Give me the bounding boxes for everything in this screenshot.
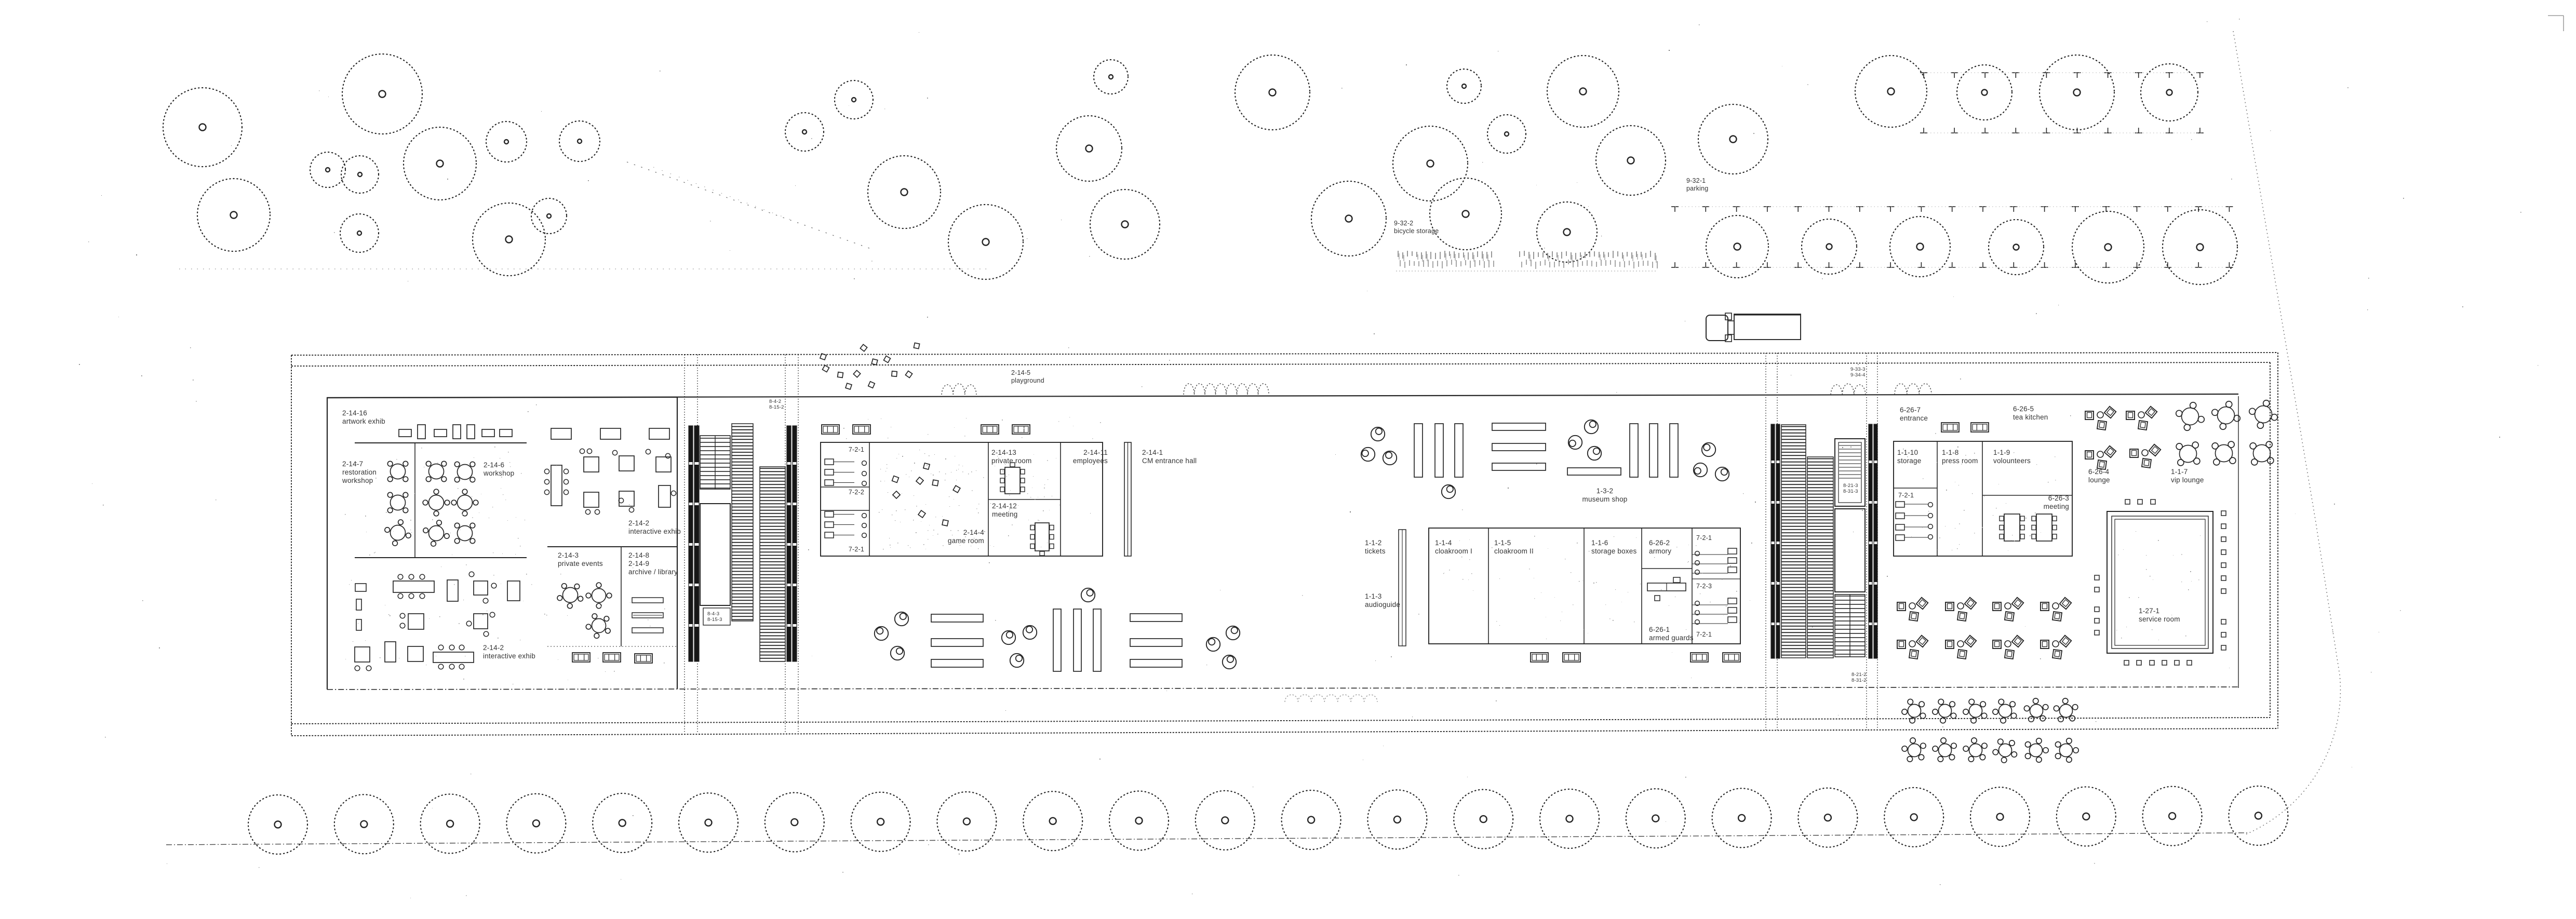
svg-text:restoration: restoration — [342, 468, 377, 476]
svg-text:museum shop: museum shop — [1582, 495, 1628, 503]
svg-text:armory: armory — [1649, 547, 1671, 555]
svg-text:CM entrance hall: CM entrance hall — [1142, 457, 1197, 465]
svg-text:2-14-3: 2-14-3 — [558, 551, 579, 559]
svg-text:1-1-7: 1-1-7 — [2171, 468, 2188, 476]
svg-text:interactive exhib: interactive exhib — [483, 652, 535, 660]
svg-text:2-14-1: 2-14-1 — [1142, 449, 1163, 456]
svg-text:6-26-5: 6-26-5 — [2013, 405, 2034, 413]
svg-text:lounge: lounge — [2088, 476, 2110, 484]
svg-text:storage boxes: storage boxes — [1591, 547, 1636, 555]
svg-text:7-2-1: 7-2-1 — [1696, 631, 1712, 638]
svg-text:2-14-2: 2-14-2 — [628, 519, 649, 527]
svg-text:7-2-2: 7-2-2 — [849, 489, 864, 496]
svg-text:2-14-9: 2-14-9 — [628, 560, 649, 567]
svg-text:2-14-7: 2-14-7 — [342, 460, 363, 468]
svg-text:6-26-2: 6-26-2 — [1649, 539, 1670, 547]
svg-text:private room: private room — [991, 457, 1031, 465]
svg-text:8-21-2: 8-21-2 — [1852, 672, 1867, 678]
svg-text:9-34-4: 9-34-4 — [1850, 372, 1866, 378]
svg-text:entrance: entrance — [1900, 414, 1928, 422]
svg-text:game room: game room — [948, 537, 984, 545]
svg-text:2-14-2: 2-14-2 — [483, 644, 504, 652]
svg-text:8-31-3: 8-31-3 — [1843, 489, 1858, 494]
svg-text:tea kitchen: tea kitchen — [2013, 413, 2048, 421]
svg-text:8-15-3: 8-15-3 — [707, 617, 722, 623]
svg-text:7-2-3: 7-2-3 — [1696, 583, 1712, 590]
svg-text:1-1-5: 1-1-5 — [1494, 539, 1511, 547]
svg-text:1-1-2: 1-1-2 — [1365, 539, 1382, 547]
svg-text:1-1-6: 1-1-6 — [1591, 539, 1608, 547]
svg-text:2-14-11: 2-14-11 — [1083, 449, 1108, 456]
svg-text:armed guards: armed guards — [1649, 634, 1694, 642]
svg-text:2-14-8: 2-14-8 — [628, 551, 649, 559]
svg-text:artwork exhib: artwork exhib — [342, 417, 385, 425]
svg-text:meeting: meeting — [2044, 503, 2069, 510]
svg-text:press room: press room — [1942, 457, 1978, 465]
svg-text:1-1-3: 1-1-3 — [1365, 592, 1382, 600]
svg-text:2-14-5: 2-14-5 — [1011, 369, 1030, 376]
svg-text:7-2-1: 7-2-1 — [849, 546, 864, 553]
svg-text:8-4-2: 8-4-2 — [769, 399, 781, 404]
svg-text:7-2-1: 7-2-1 — [1898, 492, 1914, 499]
svg-text:workshop: workshop — [342, 477, 373, 484]
svg-text:1-1-10: 1-1-10 — [1897, 449, 1918, 456]
svg-text:vip lounge: vip lounge — [2171, 476, 2204, 484]
svg-text:6-26-3: 6-26-3 — [2048, 494, 2069, 502]
svg-text:2-14-6: 2-14-6 — [484, 461, 504, 469]
svg-text:7-2-1: 7-2-1 — [849, 446, 864, 453]
svg-text:9-32-1: 9-32-1 — [1686, 177, 1706, 184]
svg-text:8-31-2: 8-31-2 — [1852, 678, 1867, 683]
svg-text:2-14-4: 2-14-4 — [963, 529, 985, 536]
svg-text:tickets: tickets — [1365, 547, 1386, 555]
svg-text:storage: storage — [1897, 457, 1921, 465]
svg-text:private events: private events — [558, 560, 603, 567]
svg-text:1-27-1: 1-27-1 — [2139, 607, 2159, 615]
svg-text:2-14-13: 2-14-13 — [991, 449, 1016, 456]
svg-text:cloakroom II: cloakroom II — [1494, 547, 1534, 555]
svg-text:8-15-2: 8-15-2 — [769, 404, 784, 410]
svg-text:archive / library: archive / library — [628, 568, 678, 576]
svg-text:1-1-9: 1-1-9 — [1993, 449, 2010, 456]
svg-text:cloakroom I: cloakroom I — [1435, 547, 1472, 555]
svg-text:volounteers: volounteers — [1993, 457, 2031, 465]
svg-text:interactive exhib: interactive exhib — [628, 528, 681, 535]
svg-text:1-1-8: 1-1-8 — [1942, 449, 1959, 456]
svg-text:8-4-3: 8-4-3 — [707, 611, 719, 617]
svg-text:service room: service room — [2139, 615, 2180, 623]
svg-text:1-1-4: 1-1-4 — [1435, 539, 1452, 547]
svg-text:6-26-7: 6-26-7 — [1900, 406, 1921, 414]
svg-text:6-26-1: 6-26-1 — [1649, 626, 1670, 633]
svg-text:1-3-2: 1-3-2 — [1596, 487, 1614, 495]
svg-text:2-14-12: 2-14-12 — [992, 502, 1017, 510]
svg-text:9-33-3: 9-33-3 — [1850, 367, 1866, 372]
svg-text:2-14-16: 2-14-16 — [342, 409, 367, 417]
svg-text:bicycle storage: bicycle storage — [1394, 227, 1439, 235]
svg-text:7-2-1: 7-2-1 — [1696, 534, 1712, 542]
svg-text:audioguide: audioguide — [1365, 601, 1400, 609]
svg-text:6-26-4: 6-26-4 — [2088, 468, 2110, 476]
svg-text:parking: parking — [1686, 185, 1708, 192]
svg-text:8-21-3: 8-21-3 — [1843, 483, 1858, 489]
svg-text:9-32-2: 9-32-2 — [1394, 220, 1413, 227]
svg-text:employees: employees — [1073, 457, 1108, 465]
svg-text:meeting: meeting — [992, 510, 1017, 518]
svg-text:playground: playground — [1011, 377, 1044, 384]
svg-text:workshop: workshop — [483, 469, 514, 477]
